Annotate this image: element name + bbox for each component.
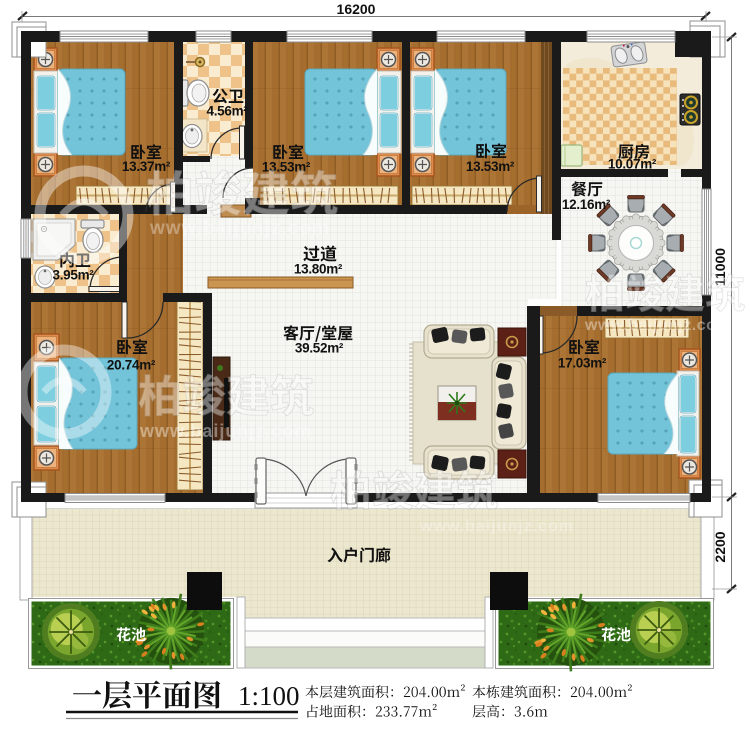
svg-text:4.56m²: 4.56m² xyxy=(207,104,249,119)
svg-text:13.80m²: 13.80m² xyxy=(294,262,343,277)
svg-text:39.52m²: 39.52m² xyxy=(295,341,344,356)
svg-text:www.baijunjz.com: www.baijunjz.com xyxy=(139,421,311,441)
svg-text:10.07m²: 10.07m² xyxy=(608,157,657,172)
svg-text:20.74m²: 20.74m² xyxy=(107,358,156,373)
svg-text:1:100: 1:100 xyxy=(238,681,300,711)
svg-text:13.53m²: 13.53m² xyxy=(466,159,515,174)
svg-text:17.03m²: 17.03m² xyxy=(558,356,607,371)
svg-text:13.37m²: 13.37m² xyxy=(122,159,171,174)
svg-text:2200: 2200 xyxy=(712,531,728,562)
svg-text:3.95m²: 3.95m² xyxy=(53,268,95,283)
svg-text:12.16m²: 12.16m² xyxy=(562,197,611,212)
svg-text:www.baijunjz.com: www.baijunjz.com xyxy=(584,317,731,334)
svg-text:www.baijunjz.com: www.baijunjz.com xyxy=(149,218,330,239)
svg-text:16200: 16200 xyxy=(337,1,376,17)
svg-text:www.baijunjz.com: www.baijunjz.com xyxy=(419,518,574,535)
